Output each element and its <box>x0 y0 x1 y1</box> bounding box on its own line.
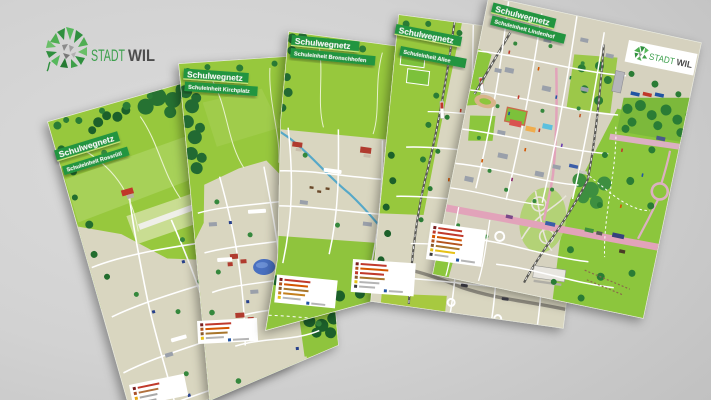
svg-text:WIL: WIL <box>128 46 155 65</box>
svg-text:STADT: STADT <box>91 46 125 65</box>
